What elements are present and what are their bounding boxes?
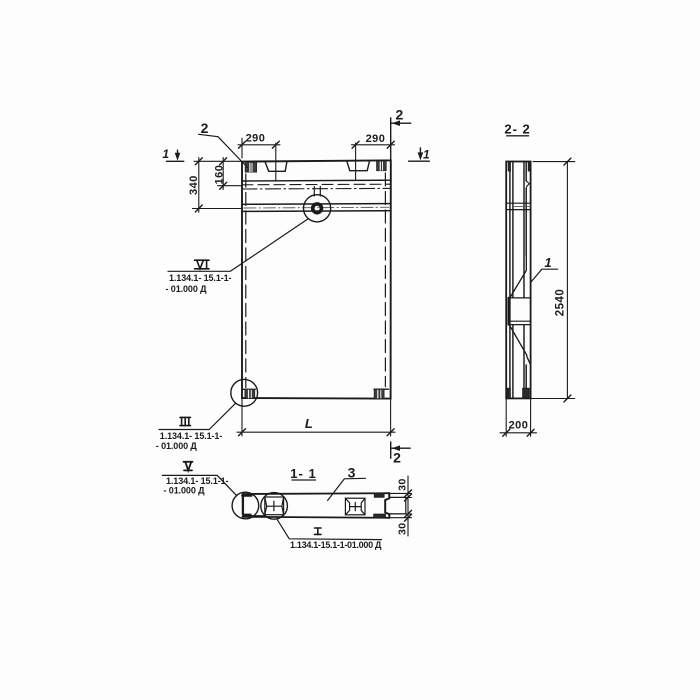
- svg-text:1.134.1-15.1-1-01.000 Д: 1.134.1-15.1-1-01.000 Д: [290, 540, 382, 550]
- svg-text:30: 30: [396, 478, 408, 491]
- svg-text:2: 2: [396, 107, 404, 123]
- svg-text:- 01.000 Д: - 01.000 Д: [164, 486, 206, 496]
- svg-text:1: 1: [162, 147, 169, 161]
- svg-text:1- 1: 1- 1: [290, 466, 316, 481]
- svg-text:1.134.1- 15.1-1-: 1.134.1- 15.1-1-: [160, 431, 223, 441]
- svg-text:290: 290: [246, 133, 266, 145]
- svg-text:2: 2: [393, 450, 401, 466]
- svg-text:2- 2: 2- 2: [504, 122, 530, 137]
- svg-text:160: 160: [214, 165, 226, 185]
- svg-text:340: 340: [188, 175, 200, 195]
- svg-text:200: 200: [509, 420, 529, 432]
- svg-text:30: 30: [396, 522, 408, 535]
- svg-text:L: L: [305, 416, 313, 431]
- svg-text:1.134.1- 15.1-1-: 1.134.1- 15.1-1-: [169, 273, 232, 283]
- svg-text:2540: 2540: [555, 289, 567, 317]
- svg-text:3: 3: [348, 465, 356, 481]
- svg-text:1: 1: [544, 255, 551, 270]
- svg-text:290: 290: [366, 133, 386, 145]
- svg-text:2: 2: [201, 120, 209, 136]
- svg-text:- 01.000 Д: - 01.000 Д: [166, 284, 208, 294]
- svg-text:- 01.000 Д: - 01.000 Д: [156, 441, 198, 451]
- svg-text:1: 1: [423, 148, 430, 162]
- svg-text:1.134.1- 15.1-1-: 1.134.1- 15.1-1-: [166, 476, 229, 486]
